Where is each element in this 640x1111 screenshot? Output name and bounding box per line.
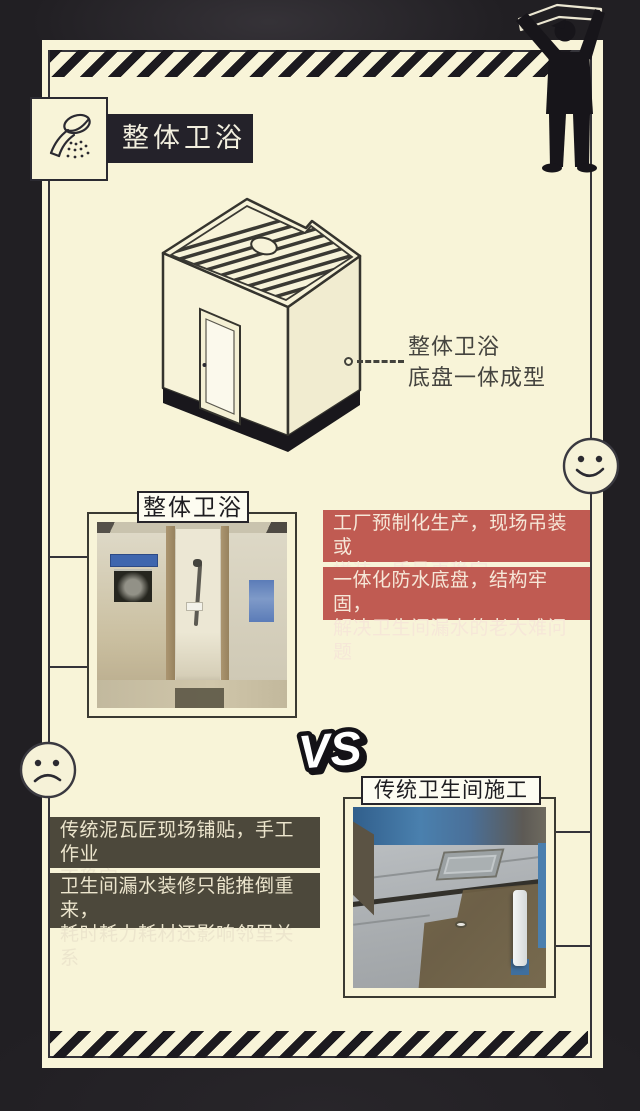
- photo-floor-shadow: [175, 688, 224, 708]
- benefit-note-1-line1: 工厂预制化生产，现场吊装或: [333, 512, 580, 560]
- callout-line1: 整体卫浴: [408, 331, 546, 362]
- connector-tick: [554, 945, 592, 947]
- photo-blue-sign: [110, 554, 158, 567]
- photo-dark-poster: [114, 569, 152, 602]
- page-title: 整体卫浴: [107, 114, 253, 163]
- drawback-note-1-line1: 传统泥瓦匠现场铺贴，手工作业: [60, 819, 310, 867]
- hazard-stripes-top: [50, 50, 588, 77]
- benefit-note-2-line2: 解决卫生间漏水的老大难问题: [333, 617, 580, 665]
- photo-shower-head: [193, 559, 203, 566]
- drawback-note-2: 卫生间漏水装修只能推倒重来， 耗时耗力耗材还影响邻里关系: [50, 873, 320, 928]
- photo-traditional-image: [353, 807, 546, 988]
- vs-text: VS VS VS: [278, 716, 382, 784]
- door-handle: [203, 363, 207, 367]
- shower-icon-box: [30, 97, 108, 181]
- callout-text: 整体卫浴 底盘一体成型: [408, 331, 546, 393]
- callout-line2: 底盘一体成型: [408, 362, 546, 393]
- photo-access-panel: [435, 849, 504, 881]
- photo-modern-bathroom: [87, 512, 297, 718]
- infographic-poster: 整体卫浴: [0, 0, 640, 1111]
- photo-pvc-pipe: [513, 890, 527, 966]
- photo-door-jamb: [221, 526, 230, 705]
- photo-traditional-bathroom: [343, 797, 556, 998]
- modern-photo-label: 整体卫浴: [137, 491, 249, 523]
- sad-face-icon: [18, 740, 78, 800]
- drawback-note-2-line1: 卫生间漏水装修只能推倒重来，: [60, 875, 310, 923]
- photo-right-membrane: [538, 843, 546, 948]
- benefit-note-2-line1: 一体化防水底盘，结构牢固，: [333, 569, 580, 617]
- vs-fill: VS: [296, 720, 363, 778]
- benefit-note-2: 一体化防水底盘，结构牢固， 解决卫生间漏水的老大难问题: [323, 567, 590, 620]
- drawback-note-2-line2: 耗时耗力耗材还影响邻里关系: [60, 923, 310, 971]
- isometric-bathroom-diagram: [150, 190, 420, 460]
- hazard-stripes-bottom: [50, 1031, 588, 1058]
- photo-shelf: [186, 602, 203, 611]
- shower-icon: [41, 111, 97, 167]
- connector-tick: [48, 556, 88, 558]
- connector-tick: [48, 666, 88, 668]
- callout-dashed-line: [357, 360, 404, 363]
- worker-silhouette: [512, 0, 627, 180]
- worker-body: [516, 9, 605, 173]
- photo-blue-poster: [249, 580, 274, 623]
- smiley-face-icon: [561, 436, 621, 496]
- drawback-note-1: 传统泥瓦匠现场铺贴，手工作业 不稳定: [50, 817, 320, 868]
- door-panel: [206, 319, 234, 414]
- photo-door-jamb: [166, 526, 175, 705]
- traditional-photo-label: 传统卫生间施工: [361, 776, 541, 805]
- callout-marker-dot: [344, 357, 353, 366]
- connector-tick: [554, 831, 592, 833]
- photo-blue-wall: [353, 807, 546, 845]
- photo-modern-image: [97, 522, 287, 708]
- benefit-note-1: 工厂预制化生产，现场吊装或 拼装，质量更稳定: [323, 510, 590, 562]
